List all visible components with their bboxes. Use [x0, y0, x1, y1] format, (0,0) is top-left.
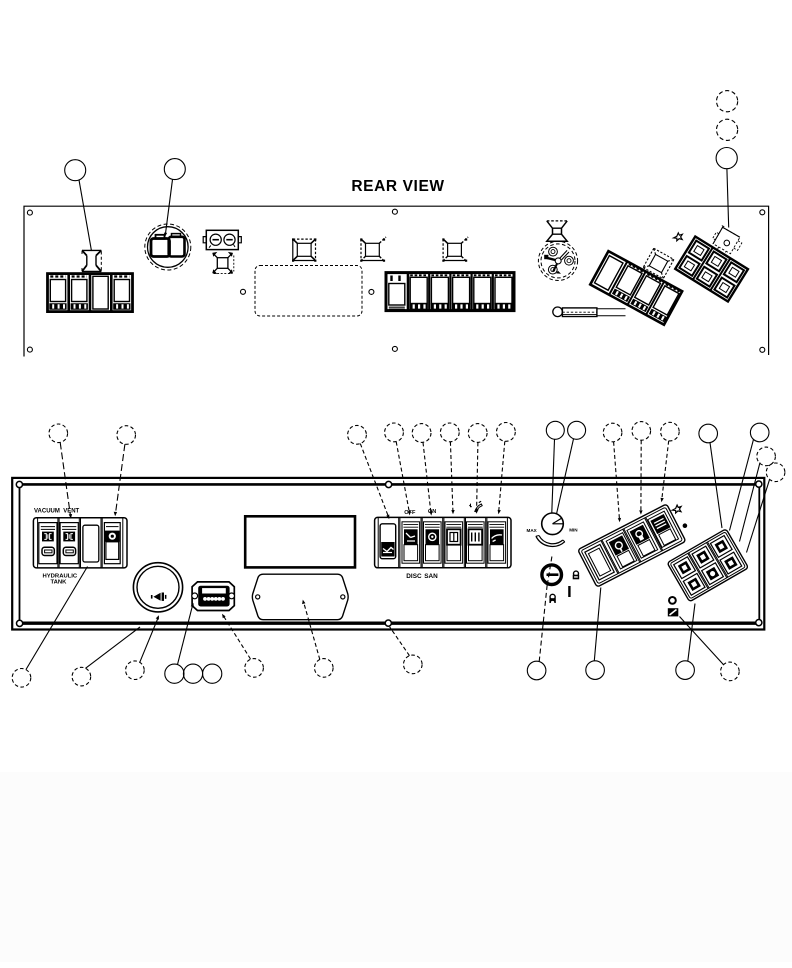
svg-text:SAN: SAN	[424, 573, 438, 580]
svg-text:VACUUM VENT: VACUUM VENT	[34, 508, 80, 514]
svg-text:HYDRAULIC: HYDRAULIC	[43, 573, 78, 579]
svg-text:MIN: MIN	[569, 527, 578, 532]
svg-text:MAX: MAX	[527, 528, 538, 533]
svg-text:TANK: TANK	[51, 580, 68, 586]
svg-text:REAR VIEW: REAR VIEW	[351, 178, 444, 195]
svg-text:DISC: DISC	[406, 573, 422, 580]
